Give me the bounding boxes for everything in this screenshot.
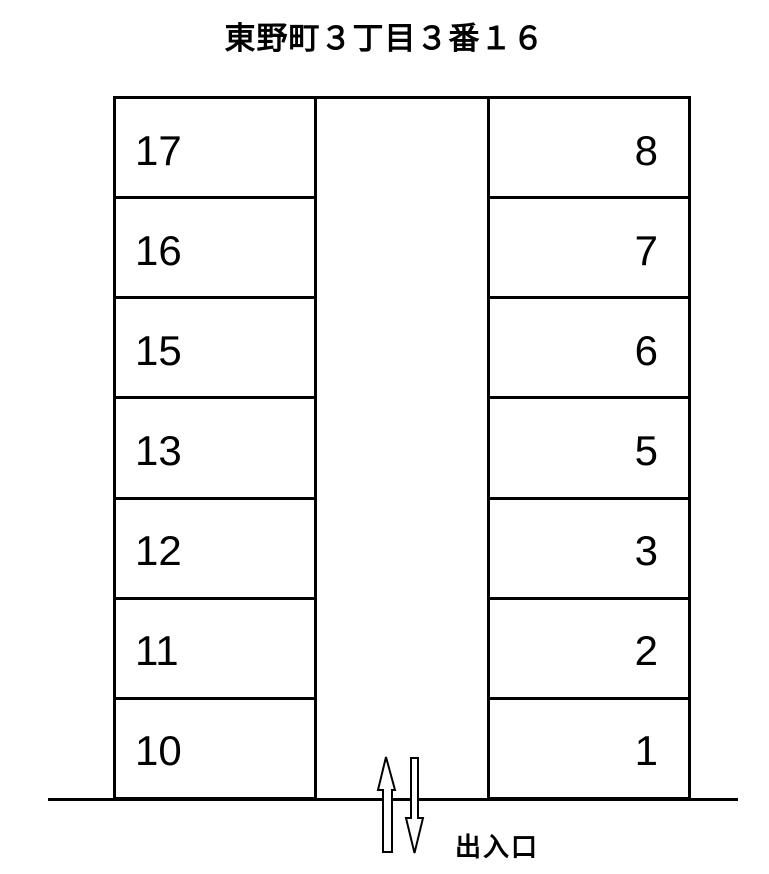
parking-space: 17 <box>116 99 314 199</box>
parking-space: 6 <box>490 299 688 399</box>
page-title: 東野町３丁目３番１６ <box>0 13 769 58</box>
parking-space: 10 <box>116 700 314 797</box>
up-arrow-icon <box>378 757 395 852</box>
parking-space: 11 <box>116 600 314 700</box>
parking-space-label: 2 <box>635 627 658 675</box>
parking-space: 13 <box>116 399 314 499</box>
parking-space-label: 13 <box>135 427 182 475</box>
entrance-exit-label: 出入口 <box>455 827 539 864</box>
top-boundary-line <box>317 96 487 99</box>
parking-space: 2 <box>490 600 688 700</box>
entrance-arrows <box>372 750 428 862</box>
parking-column-left: 17 16 15 13 12 11 10 <box>113 96 317 800</box>
parking-space-label: 17 <box>135 127 182 175</box>
parking-column-right: 8 7 6 5 3 2 1 <box>487 96 691 800</box>
parking-space: 3 <box>490 500 688 600</box>
parking-space-label: 7 <box>635 227 658 275</box>
down-arrow-icon <box>406 758 423 853</box>
parking-space-label: 12 <box>135 527 182 575</box>
parking-space-label: 8 <box>635 127 658 175</box>
parking-space: 8 <box>490 99 688 199</box>
parking-space-label: 15 <box>135 327 182 375</box>
parking-space: 1 <box>490 700 688 797</box>
parking-space-label: 11 <box>135 627 179 675</box>
parking-space: 5 <box>490 399 688 499</box>
parking-space: 15 <box>116 299 314 399</box>
parking-space: 7 <box>490 199 688 299</box>
parking-space-label: 1 <box>635 727 658 775</box>
parking-space: 16 <box>116 199 314 299</box>
parking-space-label: 3 <box>635 527 658 575</box>
parking-space-label: 6 <box>635 327 658 375</box>
parking-space-label: 16 <box>135 227 182 275</box>
parking-space-label: 5 <box>635 427 658 475</box>
parking-map-page: 東野町３丁目３番１６ 17 16 15 13 12 11 10 8 7 6 5 … <box>0 0 769 874</box>
parking-space: 12 <box>116 500 314 600</box>
parking-space-label: 10 <box>135 727 182 775</box>
